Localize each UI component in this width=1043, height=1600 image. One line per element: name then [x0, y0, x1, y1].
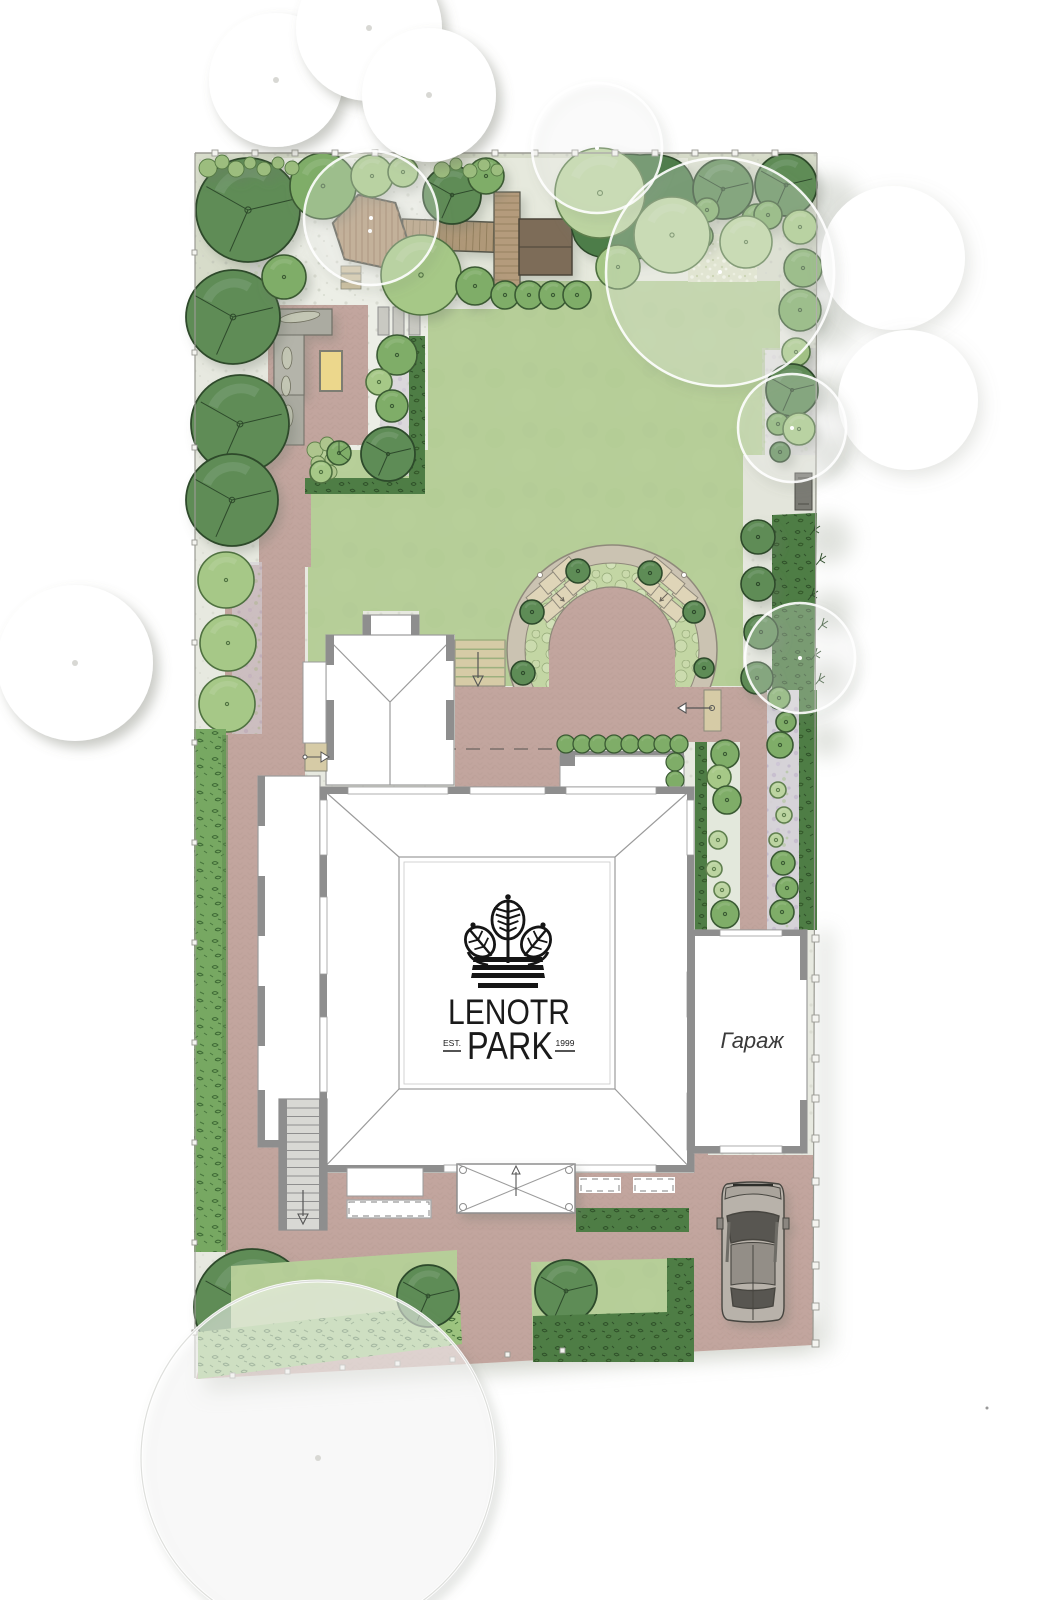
svg-text:Гараж: Гараж: [720, 1028, 784, 1053]
svg-text:EST.: EST.: [443, 1038, 461, 1048]
svg-text:1999: 1999: [556, 1038, 575, 1048]
svg-text:PARK: PARK: [467, 1025, 553, 1068]
